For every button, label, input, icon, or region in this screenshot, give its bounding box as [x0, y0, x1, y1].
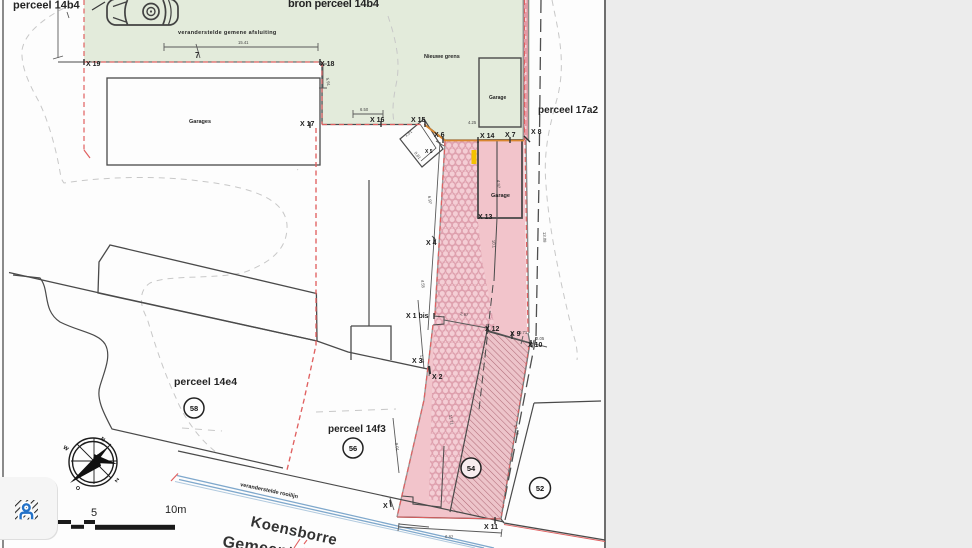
svg-text:10m: 10m — [165, 504, 186, 516]
svg-text:X 8: X 8 — [531, 129, 542, 136]
svg-text:4.25: 4.25 — [468, 120, 477, 125]
svg-text:perceel 14f3: perceel 14f3 — [328, 424, 386, 435]
svg-text:perceel 17a2: perceel 17a2 — [538, 105, 598, 116]
svg-text:4.97: 4.97 — [496, 180, 501, 189]
svg-text:15.41: 15.41 — [238, 40, 249, 45]
svg-text:X 4: X 4 — [426, 240, 437, 247]
svg-text:X 18: X 18 — [320, 61, 335, 68]
svg-text:X 7: X 7 — [505, 132, 516, 139]
svg-text:2.05: 2.05 — [536, 336, 545, 341]
svg-text:Nieuwe grens: Nieuwe grens — [424, 54, 460, 60]
svg-text:52: 52 — [536, 484, 544, 493]
svg-text:4.55: 4.55 — [420, 280, 426, 289]
svg-text:58: 58 — [190, 404, 198, 413]
svg-text:X: X — [383, 503, 388, 510]
svg-text:7: 7 — [195, 51, 200, 60]
svg-text:10.1: 10.1 — [491, 240, 497, 249]
svg-text:X 15: X 15 — [411, 117, 426, 124]
svg-text:X 6: X 6 — [434, 132, 445, 139]
svg-text:56: 56 — [349, 444, 357, 453]
svg-text:54: 54 — [467, 464, 476, 473]
svg-text:X 13: X 13 — [478, 214, 493, 221]
svg-text:veranderstelde gemene afsluiti: veranderstelde gemene afsluiting — [178, 30, 277, 36]
svg-text:Garage: Garage — [489, 95, 506, 101]
svg-text:X 5: X 5 — [425, 149, 433, 155]
svg-text:X 1 bis: X 1 bis — [406, 313, 429, 320]
svg-text:X 12: X 12 — [485, 326, 500, 333]
svg-text:6.50: 6.50 — [360, 107, 369, 112]
svg-text:X 19: X 19 — [86, 61, 101, 68]
svg-text:13.08: 13.08 — [542, 232, 547, 243]
svg-text:X 11: X 11 — [484, 524, 498, 531]
svg-text:X 17: X 17 — [300, 121, 315, 128]
svg-text:6.97: 6.97 — [427, 196, 433, 205]
svg-text:perceel 14e4: perceel 14e4 — [174, 376, 237, 388]
svg-text:Garages: Garages — [189, 119, 211, 125]
svg-text:perceel 14b4: perceel 14b4 — [13, 0, 81, 12]
svg-text:6.82: 6.82 — [445, 534, 454, 539]
svg-text:X 2: X 2 — [432, 374, 443, 381]
svg-text:0.71: 0.71 — [519, 330, 528, 335]
svg-text:5: 5 — [91, 507, 97, 519]
svg-text:X 14: X 14 — [480, 133, 495, 140]
svg-text:X 10: X 10 — [528, 342, 543, 349]
svg-text:X 16: X 16 — [370, 117, 385, 124]
svg-text:bron perceel 14b4: bron perceel 14b4 — [288, 0, 380, 10]
svg-text:Garage: Garage — [491, 193, 510, 199]
